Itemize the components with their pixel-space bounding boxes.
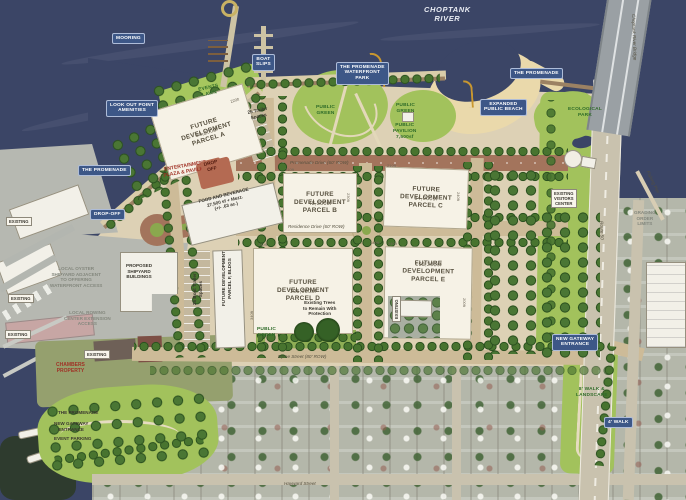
drop-off-box-label: DROP OFF (200, 157, 223, 177)
dim-140: 140ft (370, 241, 379, 246)
rowing-center-note: LOCAL ROWING CENTER EXTENSION ACCESS (64, 310, 111, 327)
bridge-label: Choptank River Bridge (630, 14, 637, 60)
dim-parcel-d-top: 340ft (258, 243, 267, 248)
hayward-street-label: Hayward Street (284, 481, 316, 487)
public-pavilion-label: PUBLIC PAVILION 7,500sf (393, 123, 417, 141)
order-limits-note: GRADING ORDER LIMITS (634, 210, 656, 227)
site-plan-map: FUTURE DEVELOPMENT PARCEL A 50,200sf FUT… (0, 0, 686, 500)
oyster-shipyard-note: LOCAL OYSTER SHIPYARD ADJACENT TO OFFERI… (50, 266, 102, 288)
drop-off-tag: DROP-OFF (90, 209, 125, 220)
existing-trees-label: Existing Trees to Remain With Protection (303, 300, 336, 317)
visitors-center-label: EXISTING VISITORS CENTER (551, 189, 577, 208)
gateway-south-label: NEW GATEWAY ENTRANCE (54, 421, 88, 432)
promenade-waterfront-park-tag: THE PROMENADE WATERFRONT PARK (336, 62, 389, 85)
promenade-drive-label: Promenade Drive (60' ROW) (290, 160, 349, 166)
public-green-east-label: PUBLIC GREEN (396, 103, 415, 115)
event-parking-label: EVENT PARKING (54, 436, 91, 442)
dim-parcel-e-right: 200ft (461, 298, 466, 307)
existing-label-2: EXISTING (8, 294, 34, 303)
trailer-spaces-label: 25 Trailer Spaces (247, 106, 269, 121)
boat-slips-tag: BOAT SLIPS (252, 54, 275, 71)
proposed-shipyard-label: PROPOSED SHIPYARD BUILDINGS (126, 263, 152, 280)
public-green-west-label: PUBLIC GREEN (316, 105, 335, 117)
existing-label-1: EXISTING (6, 217, 32, 226)
existing-label-3: EXISTING (5, 330, 31, 339)
promenade-right-tag: THE PROMENADE (510, 68, 563, 79)
lookout-point-tag: LOOK OUT POINT AMENITIES (106, 100, 158, 117)
dim-parcel-e-top: 340ft (388, 242, 397, 247)
river-label: CHOPTANK RIVER (424, 5, 471, 23)
dim-parcel-a: 220ft (230, 98, 240, 105)
dim-parcel-b-top: 210ft (285, 168, 294, 173)
existing-parcel-e-label: EXISTING (392, 296, 401, 322)
dim-parcel-b-right: 230ft (345, 193, 350, 202)
dim-parcel-c-top: 210ft (387, 164, 396, 169)
dim-parcel-d-left: 340ft (250, 311, 255, 320)
walk-landscape-label: 8' WALK & LANDSCAPE (576, 387, 608, 399)
dim-parcel-c-right: 240ft (455, 192, 460, 201)
expanded-beach-tag: EXPANDED PUBLIC BEACH (480, 99, 527, 116)
events-lawn-label: EVENTS LAWN (198, 84, 220, 100)
chambers-property-label: CHAMBERS PROPERTY (56, 362, 85, 374)
promenade-left-tag: THE PROMENADE (78, 165, 131, 176)
mooring-tag: MOORING (112, 33, 145, 44)
new-gateway-tag: NEW GATEWAY ENTRANCE (552, 334, 598, 351)
ecological-park-label: ECOLOGICAL PARK (568, 107, 602, 119)
existing-label-4: EXISTING (84, 350, 110, 359)
food-beverage-label: FOOD AND BEVERAGE 27,500 sf + Mezz. (+/-… (198, 187, 252, 216)
fishing-pier-label: Fishing Pier (645, 170, 661, 194)
boat-trailer-label: 25 Boat Trailer Spaces (192, 273, 203, 305)
walk-tag: 4' WALK (604, 417, 633, 428)
parcel-f-label: FUTURE DEVELOPMENT PARCEL F, BLDGS (221, 251, 232, 306)
residence-drive-label: Residence Drive (60' ROW) (288, 224, 345, 230)
labels-layer: CHOPTANK RIVERMOORINGLOOK OUT POINT AMEN… (0, 0, 686, 500)
route-50-label: Route 50 (598, 221, 604, 240)
byrne-street-label: Byrne Street (80' ROW) (278, 354, 326, 360)
public-green-south-label: PUBLIC GREEN (257, 327, 276, 339)
promenade-south-label: THE PROMENADE (58, 410, 98, 416)
